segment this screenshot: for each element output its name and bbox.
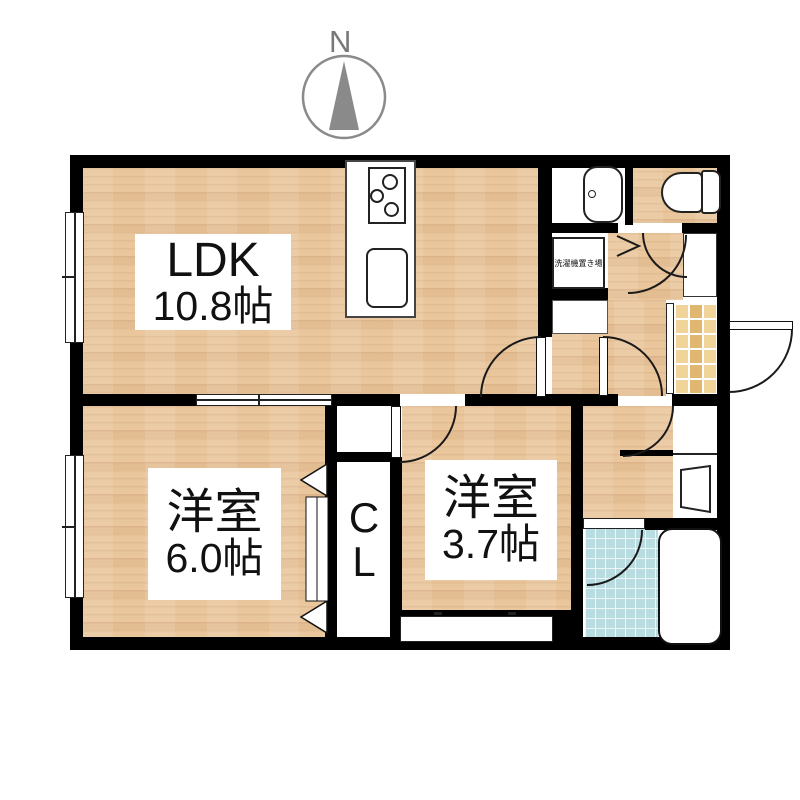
toilet-door-arc [643, 233, 687, 277]
washbasin-icon [681, 466, 710, 512]
symbol-overlay [0, 0, 800, 800]
washroom-door-arc [603, 337, 662, 396]
front-door-arc [729, 329, 792, 392]
floor-plan: 洗濯機置き場 LDK 10.8帖 洋室 6.0帖 洋室 3.7帖 CL N [0, 0, 800, 800]
closet-folding-door-icon-top [301, 464, 327, 496]
ldk-door-arc [481, 337, 541, 397]
washroom-folding-door-icon [617, 236, 639, 256]
room37-door-arc [400, 406, 456, 462]
closet-folding-door-icon-bottom [301, 601, 327, 633]
bathroom-door-arc [587, 530, 642, 585]
lower-washroom-door-arc [623, 406, 673, 456]
